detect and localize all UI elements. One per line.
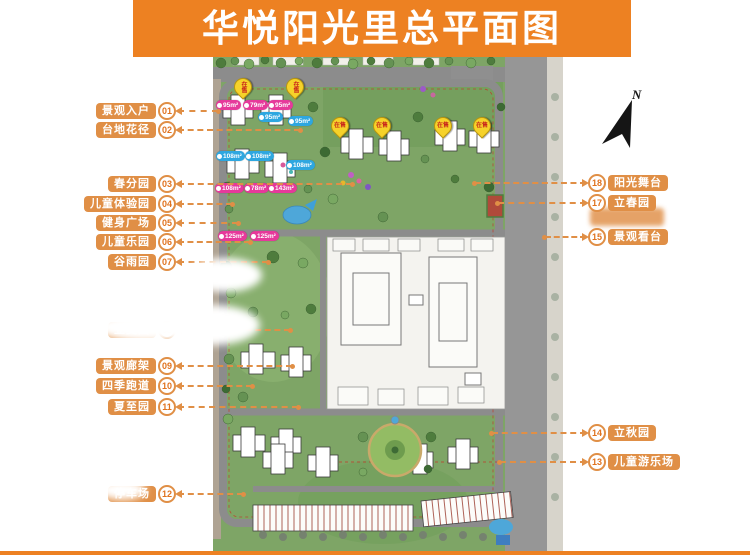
area-tag-text: 95m²	[223, 102, 238, 109]
callout-arrow	[178, 385, 252, 387]
poi-label-text: 景观廊架	[96, 358, 156, 374]
callout-arrow	[500, 461, 586, 463]
area-tag-text: 78m²	[251, 185, 266, 192]
screenshot-stage: 华悦阳光里总平面图	[0, 0, 750, 560]
poi-label-10: 四季跑道10	[96, 377, 176, 395]
area-tag: 95m²	[258, 112, 283, 122]
poi-label-text: 立秋园	[608, 425, 656, 441]
callout-arrow	[475, 182, 586, 184]
poi-label-text: 儿童体验园	[84, 196, 156, 212]
tag-dot-icon	[269, 186, 274, 191]
sale-pin-icon: 在售	[331, 117, 349, 141]
tag-dot-icon	[287, 163, 292, 168]
area-tag-text: 108m²	[252, 153, 271, 160]
poi-label-text: 立春园	[608, 195, 656, 211]
area-tag-text: 108m²	[223, 153, 242, 160]
area-tag-text: 143m²	[275, 185, 294, 192]
callout-arrow	[178, 183, 352, 185]
poi-label-text: 景观入户	[96, 103, 156, 119]
area-tag: 108m²	[286, 160, 315, 170]
sale-pin-text: 在售	[437, 123, 449, 129]
poi-label-04: 儿童体验园04	[84, 195, 176, 213]
tag-dot-icon	[259, 115, 264, 120]
callout-arrow	[178, 110, 218, 112]
callout-arrow	[178, 241, 250, 243]
callout-arrow	[178, 365, 292, 367]
page-title: 华悦阳光里总平面图	[133, 0, 631, 57]
title-bar: 华悦阳光里总平面图	[133, 0, 631, 57]
poi-label-01: 景观入户01	[96, 102, 176, 120]
sale-pin-text: 在售	[240, 81, 246, 93]
sale-pin-icon: 在售	[434, 117, 452, 141]
callout-arrow	[178, 406, 298, 408]
sale-pin-icon: 在售	[286, 78, 304, 102]
callout-arrow	[178, 129, 300, 131]
tag-dot-icon	[217, 103, 222, 108]
tag-dot-icon	[269, 103, 274, 108]
poi-label-05: 健身广场05	[96, 214, 176, 232]
poi-number-badge: 13	[588, 453, 606, 471]
poi-label-07: 谷雨园07	[108, 253, 176, 271]
watermark-smudge	[98, 480, 146, 500]
area-tag-text: 95m²	[265, 114, 280, 121]
poi-number-badge: 07	[158, 253, 176, 271]
poi-number-badge: 01	[158, 102, 176, 120]
callout-arrow	[178, 203, 232, 205]
sale-pin-icon: 在售	[473, 117, 491, 141]
area-tag-text: 79m²	[250, 102, 265, 109]
north-letter: N	[631, 87, 642, 102]
poi-number-badge: 14	[588, 424, 606, 442]
poi-label-text: 儿童游乐场	[608, 454, 680, 470]
north-arrow-icon: N	[596, 86, 648, 161]
poi-number-badge: 02	[158, 121, 176, 139]
poi-label-text: 阳光舞台	[608, 175, 668, 191]
area-tag: 125m²	[250, 231, 279, 241]
sale-pin-icon: 在售	[234, 78, 252, 102]
callout-arrow	[545, 236, 586, 238]
area-tag: 108m²	[245, 151, 274, 161]
poi-number-badge: 09	[158, 357, 176, 375]
poi-number-badge: 03	[158, 175, 176, 193]
bottom-divider	[0, 551, 750, 555]
tag-dot-icon	[216, 186, 221, 191]
poi-label-text: 夏至园	[108, 399, 156, 415]
watermark-smudge	[188, 258, 262, 292]
callout-arrow	[492, 432, 586, 434]
tag-dot-icon	[251, 234, 256, 239]
poi-label-text: 儿童乐园	[96, 234, 156, 250]
area-tag: 95m²	[288, 116, 313, 126]
sale-pin-icon: 在售	[373, 117, 391, 141]
poi-label-15: 15景观看台	[588, 228, 668, 246]
poi-label-11: 夏至园11	[108, 398, 176, 416]
poi-number-badge: 05	[158, 214, 176, 232]
callout-arrow	[178, 493, 243, 495]
sale-pin-text: 在售	[292, 81, 298, 93]
poi-label-13: 13儿童游乐场	[588, 453, 680, 471]
area-tag-text: 125m²	[257, 233, 276, 240]
poi-number-badge: 10	[158, 377, 176, 395]
poi-label-text: 健身广场	[96, 215, 156, 231]
poi-label-09: 景观廊架09	[96, 357, 176, 375]
area-tag-text: 108m²	[222, 185, 241, 192]
sale-pin-text: 在售	[334, 123, 346, 129]
poi-label-text: 台地花径	[96, 122, 156, 138]
area-tag-text: 125m²	[225, 233, 244, 240]
poi-label-text: 景观看台	[608, 229, 668, 245]
poi-label-14: 14立秋园	[588, 424, 656, 442]
sale-pin-text: 在售	[476, 123, 488, 129]
poi-number-badge: 17	[588, 194, 606, 212]
poi-number-badge: 18	[588, 174, 606, 192]
tag-dot-icon	[244, 103, 249, 108]
poi-label-06: 儿童乐园06	[96, 233, 176, 251]
poi-label-text: 春分园	[108, 176, 156, 192]
sale-pin-text: 在售	[376, 123, 388, 129]
watermark-smudge	[165, 305, 260, 345]
area-tag: 125m²	[218, 231, 247, 241]
poi-label-18: 18阳光舞台	[588, 174, 668, 192]
callout-arrow	[498, 202, 586, 204]
tag-dot-icon	[246, 154, 251, 159]
area-tag-text: 95m²	[295, 118, 310, 125]
poi-label-03: 春分园03	[108, 175, 176, 193]
area-tag: 108m²	[216, 151, 245, 161]
poi-number-badge: 04	[158, 195, 176, 213]
tag-dot-icon	[219, 234, 224, 239]
poi-label-text: 四季跑道	[96, 378, 156, 394]
poi-label-17: 17立春园	[588, 194, 656, 212]
poi-label-text: 谷雨园	[108, 254, 156, 270]
area-tag-text: 95m²	[275, 102, 290, 109]
callout-arrow	[178, 222, 238, 224]
poi-number-badge: 11	[158, 398, 176, 416]
poi-number-badge: 15	[588, 228, 606, 246]
poi-number-badge: 12	[158, 485, 176, 503]
area-tag-text: 108m²	[293, 162, 312, 169]
tag-dot-icon	[245, 186, 250, 191]
tag-dot-icon	[289, 119, 294, 124]
tag-dot-icon	[217, 154, 222, 159]
poi-label-02: 台地花径02	[96, 121, 176, 139]
poi-number-badge: 06	[158, 233, 176, 251]
